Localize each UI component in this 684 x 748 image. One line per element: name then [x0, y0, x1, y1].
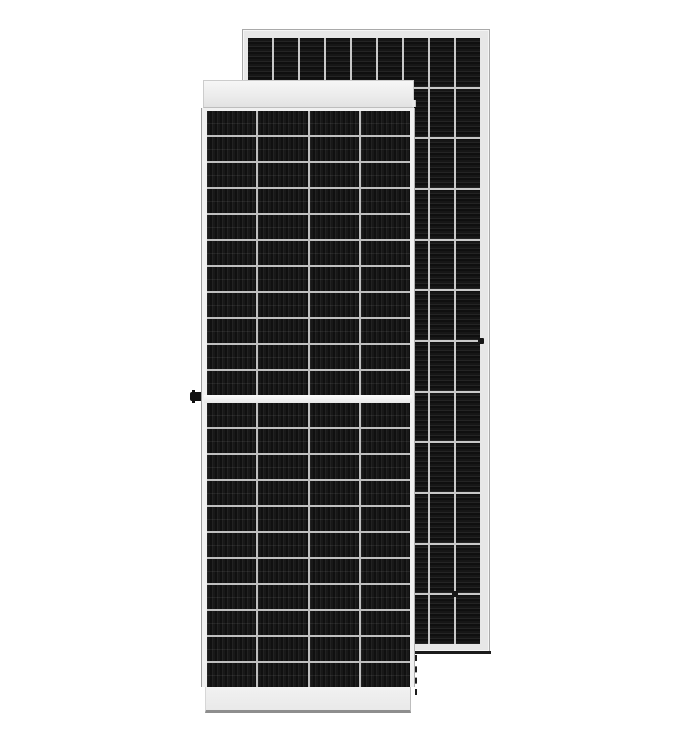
back-solar-cell — [430, 443, 454, 492]
front-solar-cell — [310, 241, 359, 265]
front-solar-cell — [207, 637, 256, 661]
front-solar-cell — [207, 163, 256, 187]
back-solar-cell — [430, 190, 454, 239]
back-solar-cell — [430, 545, 454, 594]
front-solar-cell — [361, 429, 410, 453]
front-solar-cell — [207, 481, 256, 505]
back-solar-cell — [430, 241, 454, 290]
front-solar-cell — [310, 163, 359, 187]
front-solar-cell — [310, 663, 359, 687]
front-solar-cell — [310, 481, 359, 505]
front-solar-cell — [207, 267, 256, 291]
front-solar-cell — [361, 481, 410, 505]
back-solar-cell — [430, 89, 454, 138]
front-solar-cell — [258, 137, 307, 161]
front-solar-cell — [361, 163, 410, 187]
front-solar-cell — [310, 403, 359, 427]
front-solar-cell — [361, 345, 410, 369]
hidden-edge-dashed-line — [415, 655, 417, 695]
front-solar-cell — [361, 241, 410, 265]
back-solar-cell — [456, 139, 480, 188]
front-solar-cell — [361, 371, 410, 395]
front-solar-cell — [207, 111, 256, 135]
back-solar-cell — [456, 291, 480, 340]
front-solar-cell — [310, 371, 359, 395]
front-solar-cell — [310, 267, 359, 291]
front-solar-cell — [207, 189, 256, 213]
center-rail-divider — [204, 395, 412, 403]
front-solar-cell — [207, 403, 256, 427]
front-frame-bottom-rail — [205, 687, 411, 713]
front-solar-cell — [361, 585, 410, 609]
front-solar-cell — [258, 663, 307, 687]
back-solar-cell — [456, 38, 480, 87]
front-solar-cell — [310, 559, 359, 583]
front-solar-cell — [310, 345, 359, 369]
front-solar-cell — [207, 241, 256, 265]
front-solar-cell — [258, 319, 307, 343]
back-solar-cell — [456, 393, 480, 442]
front-solar-cell — [361, 455, 410, 479]
front-solar-cell — [361, 267, 410, 291]
front-solar-cell — [310, 429, 359, 453]
front-solar-cell — [310, 611, 359, 635]
solar-panel-front — [200, 80, 416, 713]
front-solar-cell — [258, 507, 307, 531]
front-solar-cell — [258, 455, 307, 479]
back-solar-cell — [456, 595, 480, 644]
front-solar-cell — [207, 663, 256, 687]
front-solar-cell — [207, 507, 256, 531]
front-solar-cell — [310, 637, 359, 661]
back-solar-cell — [430, 38, 454, 87]
front-solar-cell — [258, 637, 307, 661]
front-solar-cell — [258, 267, 307, 291]
front-solar-cell — [361, 611, 410, 635]
front-solar-cell — [207, 319, 256, 343]
front-solar-cell — [258, 429, 307, 453]
front-solar-cell — [310, 585, 359, 609]
front-solar-cell — [361, 293, 410, 317]
front-panel-laminate — [201, 108, 415, 687]
front-solar-cell — [258, 611, 307, 635]
back-solar-cell — [456, 241, 480, 290]
front-solar-cell — [361, 533, 410, 557]
back-solar-cell — [456, 494, 480, 543]
back-solar-cell — [456, 190, 480, 239]
front-solar-cell — [258, 345, 307, 369]
front-solar-cell — [310, 189, 359, 213]
back-solar-cell — [456, 342, 480, 391]
front-solar-cell — [258, 403, 307, 427]
front-solar-cell — [207, 455, 256, 479]
front-solar-cell — [361, 403, 410, 427]
front-solar-cell — [258, 293, 307, 317]
front-solar-cell — [207, 429, 256, 453]
front-solar-cell — [361, 111, 410, 135]
front-solar-cell — [207, 371, 256, 395]
front-solar-cell — [361, 319, 410, 343]
front-solar-cell — [310, 319, 359, 343]
solar-panel-product-image — [0, 0, 684, 748]
front-cell-grid-lower — [207, 403, 410, 687]
front-solar-cell — [310, 215, 359, 239]
front-solar-cell — [310, 507, 359, 531]
back-solar-cell — [430, 393, 454, 442]
front-solar-cell — [361, 663, 410, 687]
frame-mount-hole — [452, 591, 458, 597]
back-solar-cell — [430, 342, 454, 391]
front-solar-cell — [258, 585, 307, 609]
front-solar-cell — [258, 371, 307, 395]
back-solar-cell — [456, 443, 480, 492]
front-solar-cell — [207, 611, 256, 635]
front-solar-cell — [207, 215, 256, 239]
front-solar-cell — [310, 111, 359, 135]
back-solar-cell — [456, 545, 480, 594]
front-frame-top-rail — [203, 80, 414, 108]
front-solar-cell — [361, 507, 410, 531]
front-solar-cell — [310, 533, 359, 557]
front-solar-cell — [310, 293, 359, 317]
frame-mount-hole — [478, 338, 484, 344]
front-solar-cell — [207, 137, 256, 161]
front-solar-cell — [310, 137, 359, 161]
back-solar-cell — [430, 139, 454, 188]
back-solar-cell — [430, 494, 454, 543]
back-solar-cell — [430, 291, 454, 340]
front-cell-grid-upper — [207, 111, 410, 395]
front-solar-cell — [207, 585, 256, 609]
front-solar-cell — [361, 559, 410, 583]
back-solar-cell — [430, 595, 454, 644]
front-solar-cell — [258, 111, 307, 135]
front-solar-cell — [258, 163, 307, 187]
front-solar-cell — [258, 481, 307, 505]
front-solar-cell — [361, 637, 410, 661]
grounding-lug — [190, 392, 201, 401]
front-solar-cell — [207, 345, 256, 369]
back-solar-cell — [456, 89, 480, 138]
front-solar-cell — [207, 559, 256, 583]
front-solar-cell — [361, 215, 410, 239]
front-solar-cell — [258, 533, 307, 557]
front-solar-cell — [258, 241, 307, 265]
front-solar-cell — [258, 189, 307, 213]
front-solar-cell — [207, 533, 256, 557]
front-solar-cell — [258, 559, 307, 583]
front-solar-cell — [258, 215, 307, 239]
front-solar-cell — [310, 455, 359, 479]
front-solar-cell — [361, 189, 410, 213]
front-solar-cell — [361, 137, 410, 161]
front-solar-cell — [207, 293, 256, 317]
